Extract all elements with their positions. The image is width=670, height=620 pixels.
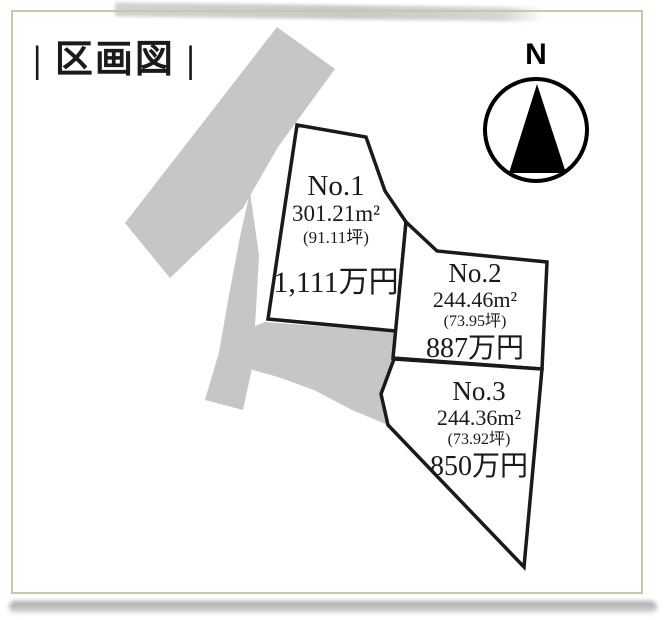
lot-2-name: No.2 [426,259,524,288]
lot-3-area-tsubo: (73.92坪) [430,430,528,450]
lot-3-label: No.3 244.36m² (73.92坪) 850万円 [430,377,528,482]
north-label: N [525,38,547,72]
lot-1-area-tsubo: (91.11坪) [273,227,398,249]
north-arrow-icon [509,84,566,173]
lot-1-price: 1,111万円 [273,267,398,299]
page-title: | 区画図 | [33,28,197,83]
lot-1-name: No.1 [273,171,398,201]
lot-map-canvas [0,0,670,620]
lot-1-label: No.1 301.21m² (91.11坪) 1,111万円 [273,171,398,299]
lot-2-price: 887万円 [426,334,524,364]
lot-3-price: 850万円 [430,452,528,482]
lot-1-area-m2: 301.21m² [273,201,398,227]
lot-2-label: No.2 244.46m² (73.95坪) 887万円 [426,259,524,364]
lot-2-area-m2: 244.46m² [426,288,524,312]
lot-3-name: No.3 [430,377,528,406]
road-branch [246,322,397,425]
lot-2-area-tsubo: (73.95坪) [426,312,524,332]
lot-3-area-m2: 244.36m² [430,406,528,430]
